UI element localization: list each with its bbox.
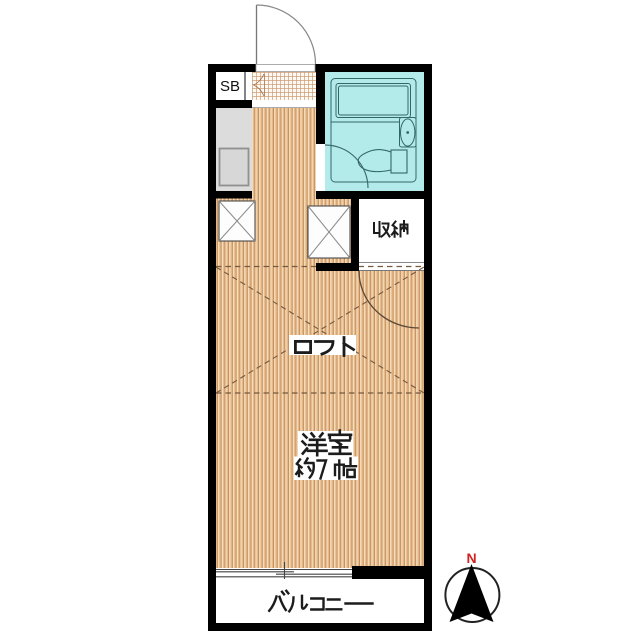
- svg-text:N: N: [466, 550, 476, 566]
- svg-text:SB: SB: [220, 78, 240, 95]
